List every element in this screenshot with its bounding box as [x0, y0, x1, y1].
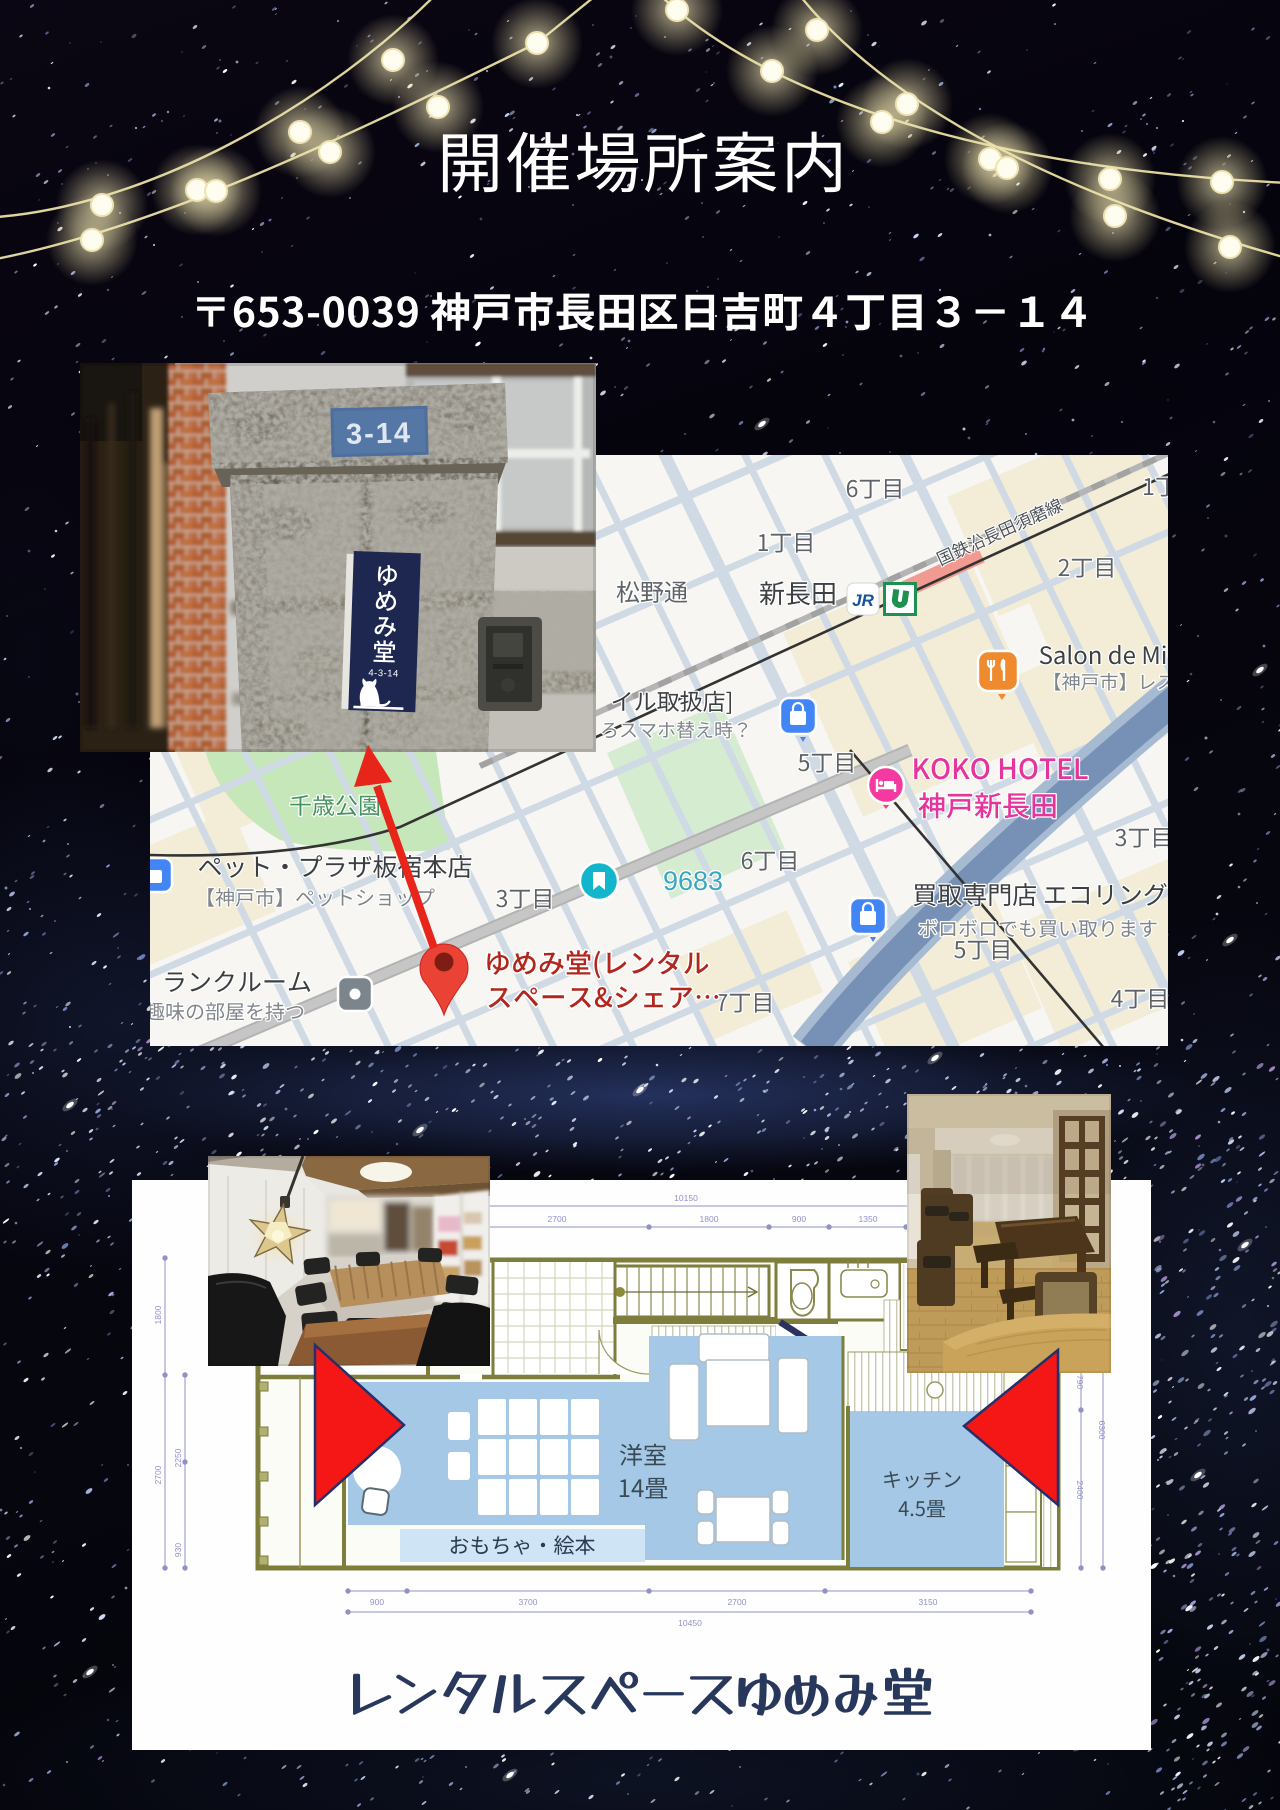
svg-text:10150: 10150 — [674, 1193, 698, 1203]
svg-text:930: 930 — [173, 1543, 183, 1557]
svg-text:9683: 9683 — [663, 866, 723, 896]
svg-text:6300: 6300 — [1097, 1421, 1107, 1440]
svg-text:3-14: 3-14 — [346, 417, 413, 451]
svg-text:3150: 3150 — [919, 1597, 938, 1607]
svg-text:900: 900 — [370, 1597, 384, 1607]
svg-text:4-3-14: 4-3-14 — [368, 668, 399, 680]
svg-text:3700: 3700 — [519, 1597, 538, 1607]
svg-text:2700: 2700 — [153, 1465, 163, 1484]
svg-text:900: 900 — [792, 1214, 806, 1224]
svg-text:2400: 2400 — [1075, 1481, 1085, 1500]
svg-text:10450: 10450 — [678, 1618, 702, 1628]
svg-text:2700: 2700 — [548, 1214, 567, 1224]
svg-text:1800: 1800 — [153, 1305, 163, 1324]
svg-text:JR: JR — [852, 591, 874, 610]
svg-text:2700: 2700 — [728, 1597, 747, 1607]
svg-text:1800: 1800 — [700, 1214, 719, 1224]
svg-text:1350: 1350 — [859, 1214, 878, 1224]
svg-text:790: 790 — [1075, 1375, 1085, 1389]
svg-text:2250: 2250 — [173, 1448, 183, 1467]
